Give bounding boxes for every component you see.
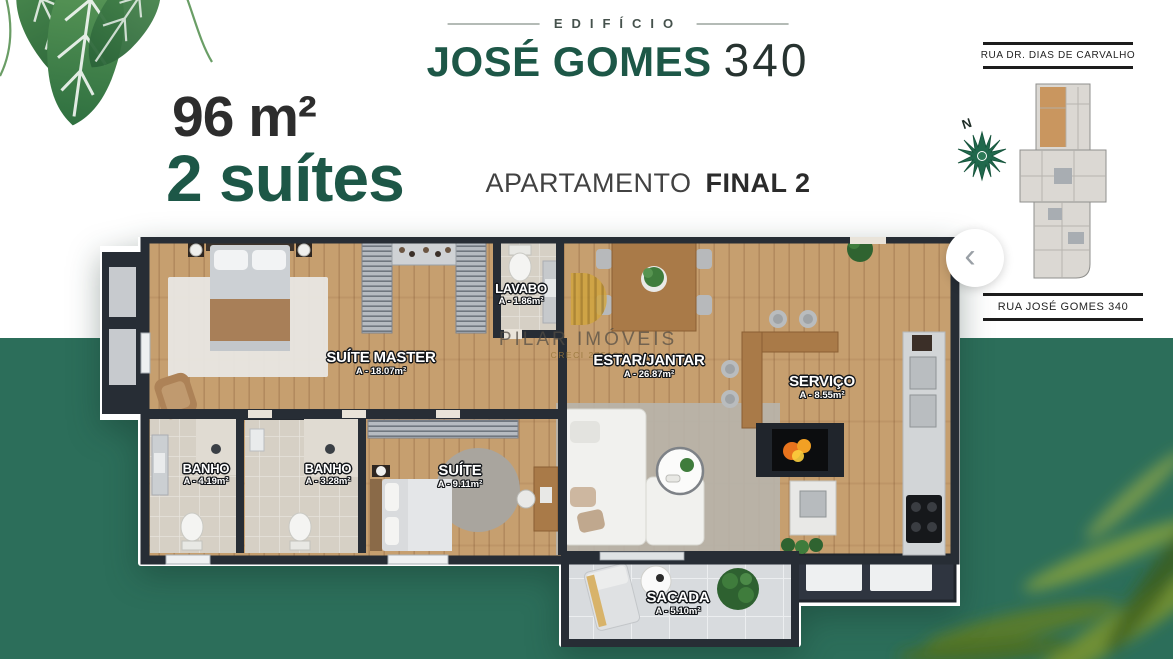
street-rule bbox=[983, 42, 1133, 45]
room-area: A - 8.55m² bbox=[799, 391, 844, 402]
watermark-name: PILAR IMÓVEIS bbox=[499, 329, 677, 351]
room-label-suite: SUÍTE A - 9.11m² bbox=[438, 463, 483, 490]
logo-tagline-row: EDIFÍCIO bbox=[427, 16, 810, 31]
floor-plan: SUÍTE MASTER A - 18.07m² LAVABO A - 1.86… bbox=[100, 237, 960, 649]
cooktop bbox=[906, 495, 942, 543]
tropical-leaves-decoration bbox=[0, 0, 213, 140]
rule-left bbox=[448, 23, 540, 25]
suite-closet bbox=[368, 420, 518, 438]
room-name: LAVABO bbox=[495, 282, 547, 297]
compass-icon bbox=[956, 130, 1008, 182]
street-rule bbox=[983, 66, 1133, 69]
room-area: A - 18.07m² bbox=[356, 367, 406, 378]
room-label-servico: SERVIÇO A - 8.55m² bbox=[789, 374, 855, 401]
chevron-left-icon: ‹ bbox=[964, 239, 975, 273]
apartment-title: APARTAMENTO FINAL 2 bbox=[485, 168, 810, 199]
room-label-lavabo: LAVABO A - 1.86m² bbox=[495, 282, 547, 307]
room-name: SERVIÇO bbox=[789, 374, 855, 391]
room-area: A - 3.28m² bbox=[305, 477, 350, 488]
watermark-logo-icon bbox=[569, 273, 607, 325]
logo-tagline: EDIFÍCIO bbox=[554, 16, 682, 31]
street-label-top: RUA DR. DIAS DE CARVALHO bbox=[983, 42, 1133, 69]
room-name: SUÍTE bbox=[438, 463, 481, 480]
room-label-banho-1: BANHO A - 4.19m² bbox=[183, 462, 230, 487]
room-name: BANHO bbox=[183, 462, 230, 477]
room-area: A - 9.11m² bbox=[438, 480, 483, 491]
ac-unit bbox=[870, 563, 932, 591]
coffee-table bbox=[657, 448, 703, 494]
logo-name-row: JOSÉ GOMES 340 bbox=[427, 33, 810, 87]
building-logo: EDIFÍCIO JOSÉ GOMES 340 bbox=[427, 16, 810, 87]
room-label-banho-2: BANHO A - 3.28m² bbox=[305, 462, 352, 487]
building-key-plan bbox=[1012, 80, 1112, 288]
highlighted-unit bbox=[1040, 87, 1066, 147]
room-name: SACADA bbox=[647, 590, 710, 607]
building-name: JOSÉ GOMES bbox=[427, 38, 712, 86]
rule-right bbox=[696, 23, 788, 25]
building-number: 340 bbox=[724, 33, 810, 87]
street-rule bbox=[983, 318, 1143, 321]
kitchen-counter bbox=[903, 332, 945, 555]
room-label-sacada: SACADA A - 5.10m² bbox=[647, 590, 710, 617]
balcony-plant bbox=[717, 568, 759, 610]
compass: N bbox=[950, 116, 1010, 188]
room-name: BANHO bbox=[305, 462, 352, 477]
suites-headline: 2 suítes bbox=[166, 140, 404, 216]
listing-poster: 96 m² 2 suítes EDIFÍCIO JOSÉ GOMES 340 A… bbox=[0, 0, 1173, 659]
room-label-estar-jantar: ESTAR/JANTAR A - 26.87m² bbox=[593, 353, 704, 380]
room-area: A - 26.87m² bbox=[624, 370, 674, 381]
room-area: A - 5.10m² bbox=[655, 607, 700, 618]
room-label-suite-master: SUÍTE MASTER A - 18.07m² bbox=[326, 350, 435, 377]
room-name: SUÍTE MASTER bbox=[326, 350, 435, 367]
apartment-final: FINAL 2 bbox=[706, 168, 811, 198]
room-area: A - 1.86m² bbox=[498, 297, 543, 308]
street-name: RUA DR. DIAS DE CARVALHO bbox=[981, 50, 1136, 61]
room-area: A - 4.19m² bbox=[183, 477, 228, 488]
ac-unit bbox=[806, 563, 862, 591]
carousel-prev-button[interactable]: ‹ bbox=[946, 229, 1004, 287]
apartment-prefix: APARTAMENTO bbox=[485, 168, 691, 198]
street-rule bbox=[983, 293, 1143, 296]
street-label-bottom: RUA JOSÉ GOMES 340 bbox=[983, 293, 1143, 321]
street-name: RUA JOSÉ GOMES 340 bbox=[998, 301, 1129, 313]
room-name: ESTAR/JANTAR bbox=[593, 353, 704, 370]
